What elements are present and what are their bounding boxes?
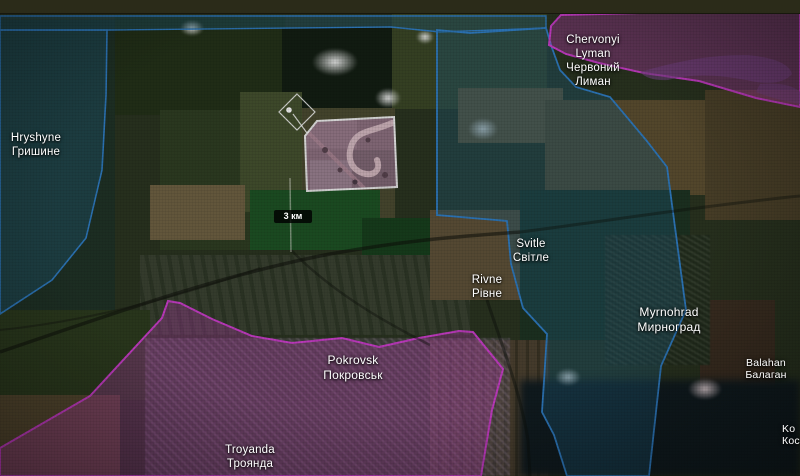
poi-diamond-icon	[279, 94, 315, 130]
highlight-inset	[303, 115, 400, 193]
place-name-en: Chervonyi	[553, 33, 633, 47]
poi-dot	[286, 107, 292, 113]
place-name-en: Svitle	[496, 237, 566, 251]
map-screenshot: { "labels": { "hryshyne": {"en": "Hryshy…	[0, 0, 800, 476]
place-label-pokrovsk: Pokrovsk Покровськ	[303, 353, 403, 382]
place-label-svitle: Svitle Світле	[496, 237, 566, 265]
place-name-en: Troyanda	[205, 443, 295, 457]
place-name-uk: Гришине	[0, 145, 72, 159]
place-name-en: Balahan	[726, 357, 800, 369]
place-name-en: Pokrovsk	[303, 353, 403, 368]
place-name-uk: Кос	[782, 435, 800, 447]
place-label-hryshyne: Hryshyne Гришине	[0, 131, 72, 159]
place-label-troyanda: Troyanda Троянда	[205, 443, 295, 471]
place-name-en: Lyman	[553, 47, 633, 61]
place-name-uk: Лиман	[553, 75, 633, 89]
place-name-en: Ko	[782, 423, 800, 435]
place-label-myrnohrad: Myrnohrad Мирноград	[619, 305, 719, 334]
place-name-uk: Троянда	[205, 457, 295, 471]
control-zone-teal-left	[0, 30, 107, 314]
place-name-uk: Світле	[496, 251, 566, 265]
place-name-uk: Балаган	[726, 369, 800, 381]
place-name-en: Myrnohrad	[619, 305, 719, 320]
place-name-en: Rivne	[452, 273, 522, 287]
place-name-uk: Рівне	[452, 287, 522, 301]
place-name-uk: Мирноград	[619, 320, 719, 335]
place-label-kos-partial: Ko Кос	[782, 423, 800, 447]
place-label-rivne: Rivne Рівне	[452, 273, 522, 301]
poi-leader-line	[293, 114, 307, 133]
place-label-chervonyi-lyman: Chervonyi Lyman Червоний Лиман	[553, 33, 633, 89]
map-overlay	[0, 0, 800, 476]
satellite-map[interactable]: 3 км Hryshyne Гришине Chervonyi Lyman Че…	[0, 0, 800, 476]
control-zone-teal-corridor	[0, 16, 546, 32]
place-label-balahan: Balahan Балаган	[726, 357, 800, 381]
letterbox-band	[0, 0, 800, 14]
scale-bar: 3 км	[274, 210, 312, 223]
place-name-uk: Червоний	[553, 61, 633, 75]
place-name-en: Hryshyne	[0, 131, 72, 145]
place-name-uk: Покровськ	[303, 368, 403, 383]
road-line	[291, 250, 430, 345]
